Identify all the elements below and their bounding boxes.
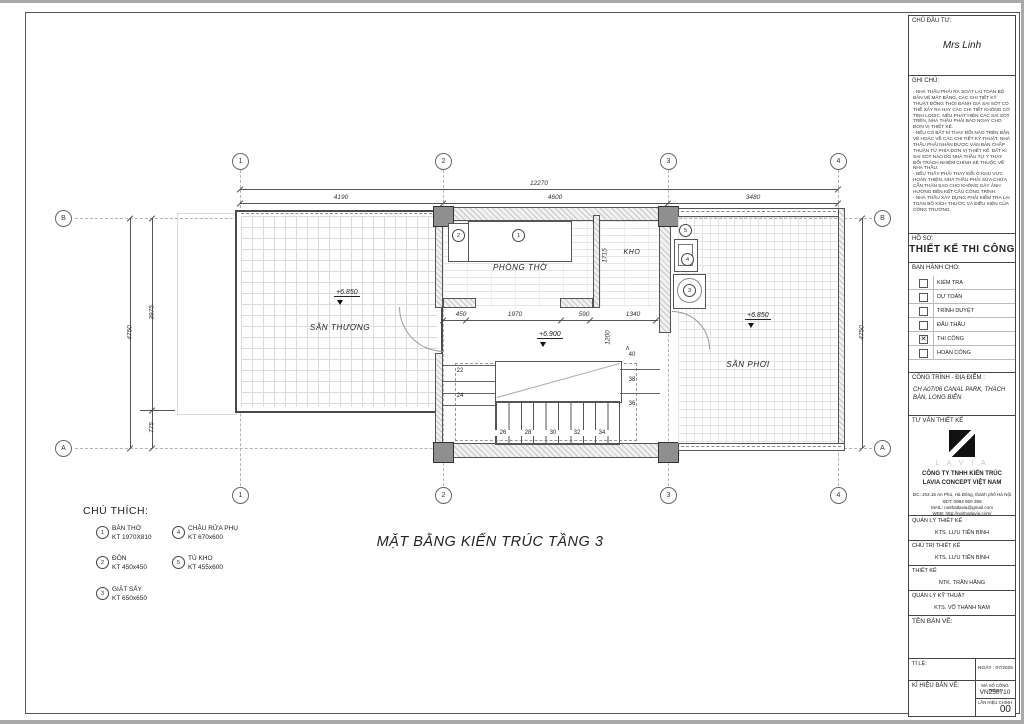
tb-revision: 00 [1000, 704, 1011, 715]
tb-issued-row-4: ✕ THI CÔNG [909, 332, 1015, 346]
grid-bubble-A-right: A [874, 440, 891, 457]
dim-1340: 1340 [613, 311, 653, 318]
tb-issued-row-0: KIỂM TRA [909, 276, 1015, 290]
tb-consultant-section: TƯ VẤN THIẾT KẾ L A V I A CÔNG TY TNHH K… [909, 416, 1015, 516]
tb-company-address: ĐC: J03.15 An Phú, Hà Đông, thành phố Hà… [909, 492, 1015, 497]
column-grid3-top [658, 206, 679, 227]
dim-ext-775 [140, 410, 175, 411]
tb-notes-text: - NHÀ THẦU PHẢI RÀ SOÁT LẠI TOÀN BỘ BẢN … [913, 89, 1010, 212]
tb-scale-date-row: TỈ LỆ: NGÀY : 07/2025 [909, 659, 1015, 681]
dim-1970: 1970 [495, 311, 535, 318]
grid-bubble-4-bottom: 4 [830, 487, 847, 504]
legend-2-size: KT 450x450 [112, 564, 147, 571]
tb-scale-label: TỈ LỆ: [912, 661, 927, 667]
dim-line-segments [240, 203, 838, 204]
tb-dossier-label: HỒ SƠ: [912, 236, 933, 242]
lavia-logo-text: L A V I A [909, 460, 1015, 467]
san-phoi-parapet-bottom-dash [681, 446, 841, 447]
tb-project-location: CH A07/06 CANAL PARK, THẠCH BÀN, LONG BI… [913, 386, 1009, 403]
level-san-thuong: +6.850 [334, 289, 360, 297]
tb-consultant-label: TƯ VẤN THIẾT KẾ [912, 418, 963, 424]
room-label-san-phoi: SÂN PHƠI [718, 360, 778, 369]
legend-2-marker: 2 [96, 556, 109, 569]
wall-kho-right [659, 215, 671, 333]
legend-1-size: KT 1970X810 [112, 534, 152, 541]
tb-dossier-title: THIẾT KẾ THI CÔNG [909, 244, 1015, 255]
stair-num-26: 26 [493, 430, 513, 436]
wall-stub-right [560, 298, 593, 308]
grid-bubble-3-bottom: 3 [660, 487, 677, 504]
tb-notes-label: GHI CHÚ: [912, 78, 939, 84]
legend-3-name: GIẶT SẤY [112, 586, 142, 593]
column-grid3-bottom [658, 442, 679, 463]
wall-top-middle [435, 207, 678, 221]
stair-num-34: 34 [592, 430, 612, 436]
dim-w3: 3480 [723, 194, 783, 201]
grid-bubble-3-top: 3 [660, 153, 677, 170]
grid-bubble-4-top: 4 [830, 153, 847, 170]
stair-direction-chevron: ∧ [625, 344, 630, 352]
tb-project-code: VN250710 [975, 689, 1015, 696]
tb-issued-label: BAN HÀNH CHO: [912, 265, 960, 271]
checkbox-trinh-duyet [919, 307, 928, 316]
sheet-background: 12270 4190 4600 3480 4750 3975 775 4750 … [0, 3, 1021, 720]
san-phoi-parapet-top-dash [681, 211, 841, 212]
tb-notes-section: GHI CHÚ: - NHÀ THẦU PHẢI RÀ SOÁT LẠI TOÀ… [909, 76, 1015, 234]
stair-num-28: 28 [518, 430, 538, 436]
wall-bottom-middle [435, 443, 678, 458]
marker-4-chau-rua: 4 [681, 253, 694, 266]
tb-issued-row-5: HOÀN CÔNG [909, 346, 1015, 360]
grid-bubble-1-bottom: 1 [232, 487, 249, 504]
legend-title: CHÚ THÍCH: [83, 505, 148, 517]
stair-num-22: 22 [450, 368, 470, 374]
level-san-phoi: +6.850 [745, 312, 771, 320]
grid-bubble-A-left: A [55, 440, 72, 457]
dim-590: 590 [564, 311, 604, 318]
tb-project-section: CÔNG TRÌNH - ĐỊA ĐIỂM : CH A07/06 CANAL … [909, 373, 1015, 416]
tb-issued-row-2: TRÌNH DUYỆT [909, 304, 1015, 318]
kho-floor [600, 221, 659, 307]
tb-client-label: CHỦ ĐẦU TƯ: [912, 18, 951, 24]
dim-h2: 775 [149, 413, 156, 443]
tb-role-1: CHỦ TRÌ THIẾT KẾ KTS. LƯU TIẾN BÌNH [909, 541, 1015, 566]
tb-dossier-section: HỒ SƠ: THIẾT KẾ THI CÔNG [909, 234, 1015, 263]
level-marker-san-phoi [748, 323, 754, 328]
marker-3-giat-say: 3 [683, 284, 696, 297]
dim-1715: 1715 [602, 236, 609, 276]
tb-role-0: QUẢN LÝ THIẾT KẾ KTS. LƯU TIẾN BÌNH [909, 516, 1015, 541]
san-thuong-parapet-dash [241, 213, 437, 214]
dim-line-middle [443, 320, 658, 321]
wall-stub-left [443, 298, 476, 308]
tb-company-line2: LAVIA CONCEPT VIỆT NAM [909, 480, 1015, 486]
stair-num-38: 38 [622, 377, 642, 383]
dim-450: 450 [441, 311, 481, 318]
grid-bubble-2-top: 2 [435, 153, 452, 170]
legend-1-marker: 1 [96, 526, 109, 539]
stair-num-40: 40 [622, 352, 642, 358]
level-stair: +6.900 [537, 331, 563, 339]
grid-bubble-B-left: B [55, 210, 72, 227]
legend-3-size: KT 650x650 [112, 595, 147, 602]
dim-overall-height: 4750 [127, 313, 134, 353]
lavia-logo [949, 430, 975, 457]
drawing-title: MẶT BẰNG KIẾN TRÚC TẦNG 3 [330, 534, 650, 550]
marker-1-ban-tho: 1 [512, 229, 525, 242]
room-label-phong-tho: PHÒNG THỜ [480, 263, 560, 272]
tb-code-row: KÍ HIỆU BẢN VẼ: MÃ SỐ CÔNG TRÌNH VN25071… [909, 681, 1015, 716]
legend-4-size: KT 670x600 [188, 534, 223, 541]
stair-num-32: 32 [567, 430, 587, 436]
legend-5-size: KT 455x600 [188, 564, 223, 571]
legend-3-marker: 3 [96, 587, 109, 600]
dim-line-overall [240, 189, 838, 190]
tb-issued-row-1: DỰ TOÁN [909, 290, 1015, 304]
tb-company-line1: CÔNG TY TNHH KIẾN TRÚC [909, 471, 1015, 477]
dim-overall-width: 12270 [499, 180, 579, 187]
legend-1-name: BÀN THỜ [112, 525, 141, 532]
dim-1200: 1200 [605, 318, 612, 358]
grid-bubble-2-bottom: 2 [435, 487, 452, 504]
legend-5-marker: 5 [172, 556, 185, 569]
tb-sheet-code-label: KÍ HIỆU BẢN VẼ: [912, 683, 959, 689]
stair-treads [495, 401, 620, 445]
tb-company-mail: MAIL: noithatlavia@gmail.com [909, 505, 1015, 510]
tb-project-label: CÔNG TRÌNH - ĐỊA ĐIỂM : [912, 375, 985, 381]
tb-client-section: CHỦ ĐẦU TƯ: Mrs Linh [909, 16, 1015, 76]
level-marker-stair [540, 342, 546, 347]
tb-role-2: THIẾT KẾ NTK. TRẦN HẰNG [909, 566, 1015, 591]
tb-role-3: QUẢN LÝ KỸ THUẬT KTS. VÕ THÀNH NAM [909, 591, 1015, 616]
tb-company-phone: SĐT: 0984 900 396 [909, 499, 1015, 504]
level-marker-san-thuong [337, 300, 343, 305]
tb-issued-row-3: ĐẤU THẦU [909, 318, 1015, 332]
wall-left-middle-upper [435, 221, 443, 308]
tb-date: NGÀY : 07/2025 [978, 666, 1013, 671]
tb-client-name: Mrs Linh [909, 40, 1015, 51]
marker-2-don: 2 [452, 229, 465, 242]
tb-drawing-name-label: TÊN BẢN VẼ: [912, 618, 952, 625]
checkbox-du-toan [919, 293, 928, 302]
legend-4-name: CHẬU RỬA PHỤ [188, 525, 238, 532]
tb-date-value: 07/2025 [996, 666, 1013, 671]
checkbox-hoan-cong [919, 349, 928, 358]
grid-bubble-B-right: B [874, 210, 891, 227]
checkbox-kiem-tra [919, 279, 928, 288]
legend-4-marker: 4 [172, 526, 185, 539]
stair-num-24: 24 [450, 393, 470, 399]
column-grid2-bottom [433, 442, 454, 463]
dim-h1: 3975 [149, 293, 156, 333]
legend-2-name: ĐÔN [112, 555, 126, 562]
dim-w1: 4190 [311, 194, 371, 201]
dim-right-height: 4750 [859, 313, 866, 353]
roof-outline [177, 213, 237, 415]
checkbox-thi-cong: ✕ [919, 335, 928, 344]
room-label-kho: KHO [610, 249, 654, 256]
wall-left-middle-lower [435, 353, 443, 445]
grid-bubble-1-top: 1 [232, 153, 249, 170]
tb-issued-section: BAN HÀNH CHO: KIỂM TRA DỰ TOÁN TRÌNH DUY… [909, 263, 1015, 373]
san-phoi-parapet-top [678, 208, 845, 217]
stair-num-36: 36 [622, 401, 642, 407]
title-block: CHỦ ĐẦU TƯ: Mrs Linh GHI CHÚ: - NHÀ THẦU… [908, 15, 1016, 717]
san-phoi-parapet-bottom [678, 443, 845, 451]
stair-num-30: 30 [543, 430, 563, 436]
checkbox-dau-thau [919, 321, 928, 330]
tb-drawing-name-section: TÊN BẢN VẼ: [909, 616, 1015, 659]
marker-5-tu-kho: 5 [679, 224, 692, 237]
room-label-san-thuong: SÂN THƯỢNG [290, 323, 390, 332]
legend-5-name: TỦ KHO [188, 555, 213, 562]
drawing-sheet: { "plan": { "title": "MẶT BẰNG KIẾN TRÚC… [0, 0, 1024, 724]
dim-w2: 4600 [525, 194, 585, 201]
wall-kho-divider [593, 215, 600, 308]
wall-san-phoi-right [838, 208, 845, 451]
